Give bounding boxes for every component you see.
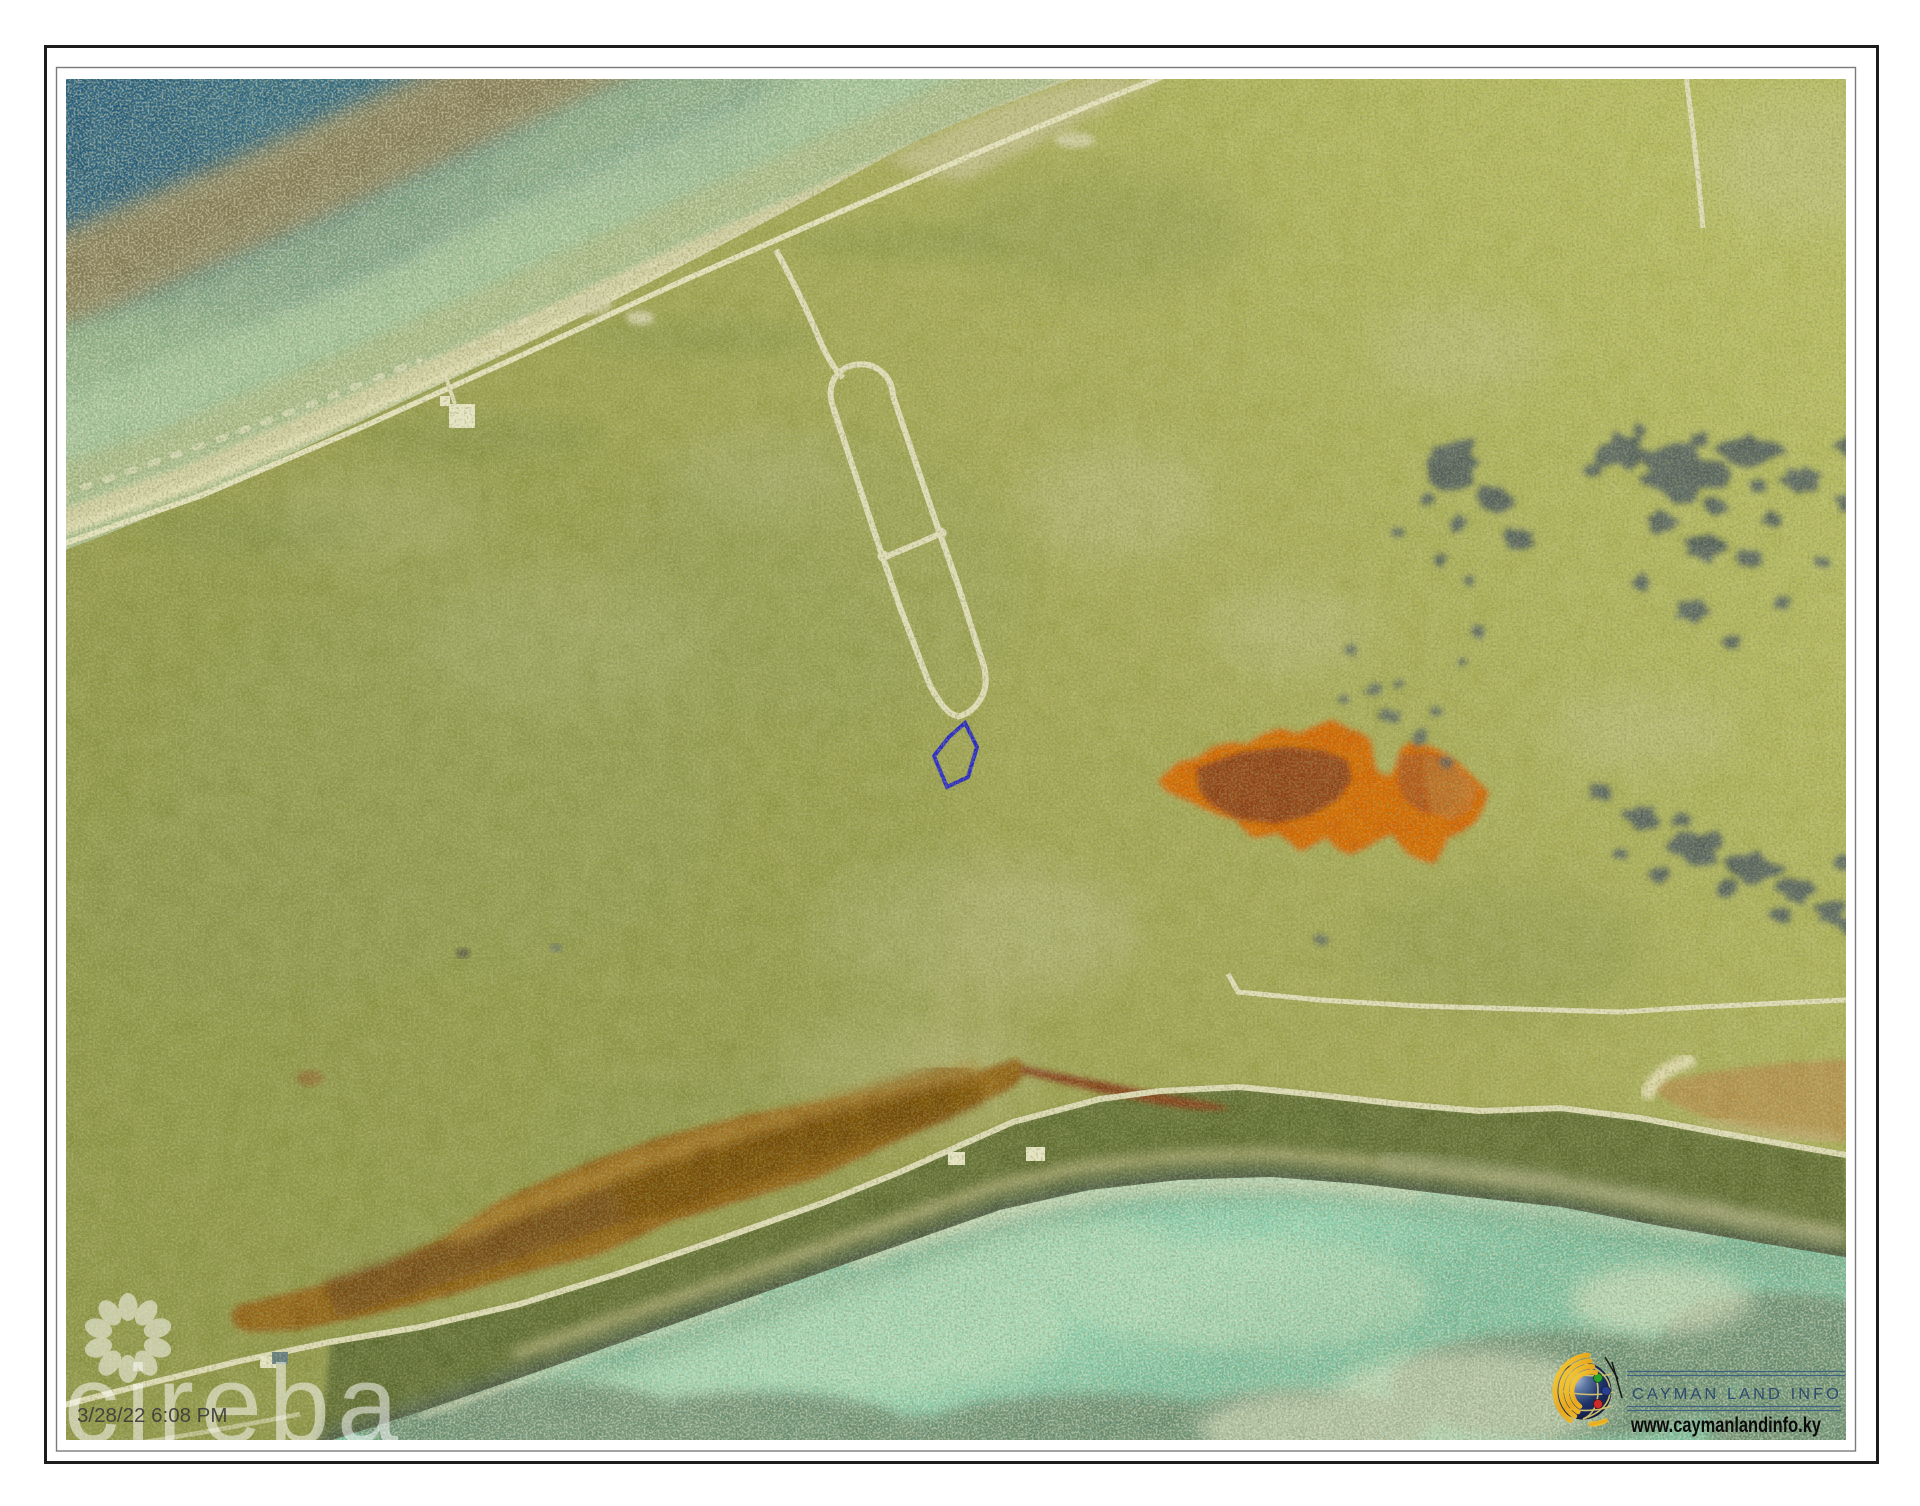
svg-text:3/28/22 6:08 PM: 3/28/22 6:08 PM: [77, 1404, 227, 1427]
svg-text:CAYMAN LAND INFO: CAYMAN LAND INFO: [1632, 1386, 1842, 1403]
svg-text:www.caymanlandinfo.ky: www.caymanlandinfo.ky: [1630, 1413, 1821, 1437]
